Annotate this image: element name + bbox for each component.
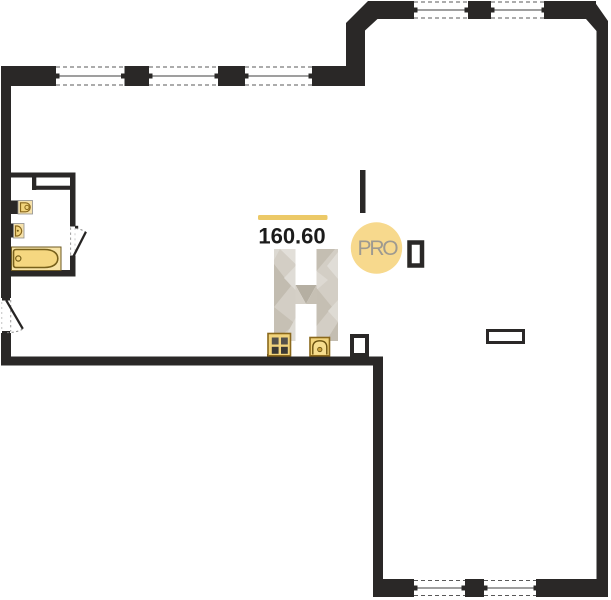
svg-text:160.60: 160.60 xyxy=(258,224,325,249)
svg-text:PRO: PRO xyxy=(358,237,399,260)
